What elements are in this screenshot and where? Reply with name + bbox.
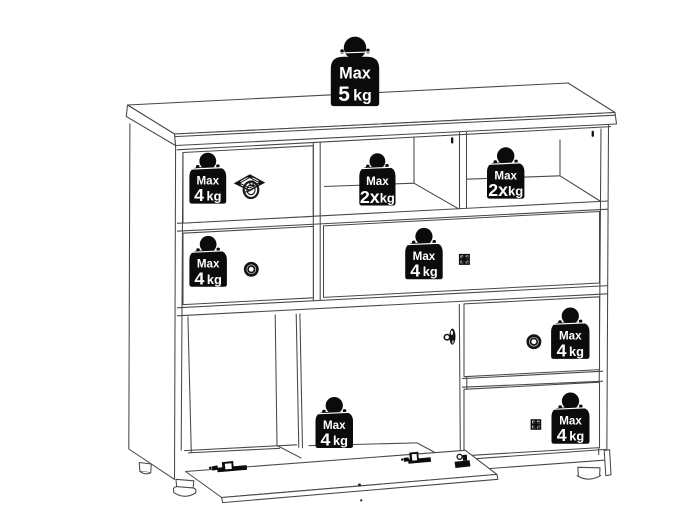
svg-text:4 kg: 4 kg xyxy=(557,425,584,445)
svg-text:Max: Max xyxy=(366,175,389,188)
svg-text:4 kg: 4 kg xyxy=(194,268,221,288)
svg-text:4 kg: 4 kg xyxy=(557,340,584,360)
svg-text:2xkg: 2xkg xyxy=(488,180,523,200)
svg-text:4 kg: 4 kg xyxy=(321,430,348,450)
svg-text:4 kg: 4 kg xyxy=(410,261,437,281)
svg-text:Max: Max xyxy=(339,65,371,83)
svg-text:2xkg: 2xkg xyxy=(360,187,395,207)
svg-text:4 kg: 4 kg xyxy=(194,185,221,205)
